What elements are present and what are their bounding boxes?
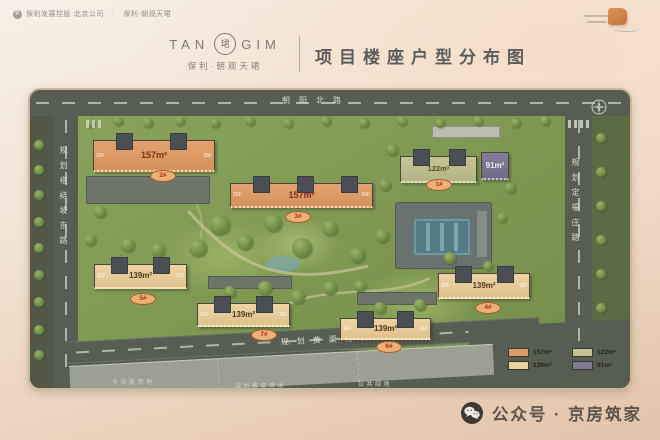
- company-separator: ｜: [110, 9, 118, 19]
- building-1-tag: 1#: [426, 179, 452, 191]
- project-name: 保利·朝观天珺: [123, 9, 171, 19]
- land-label-multifunction: 多功能用地: [112, 377, 155, 386]
- land-label-green: 公共绿地: [358, 379, 392, 388]
- company-name: 保利发展控股·北京公司: [26, 9, 104, 19]
- building-2-tag: 2#: [150, 170, 176, 182]
- page-title: 项目楼座户型分布图: [315, 43, 531, 68]
- logo-word-left: TAN: [169, 37, 209, 52]
- legend-item-139: 139m²: [508, 359, 570, 372]
- west-road-label: 规划褡裢坡东路: [58, 146, 69, 251]
- building-4-tag: 4#: [475, 302, 501, 314]
- building-7[interactable]: 11F 139m² 11F: [197, 303, 290, 327]
- building-91[interactable]: 91m²: [481, 152, 509, 180]
- building-6-tag: 6#: [376, 341, 402, 353]
- building-5-tag: 5#: [130, 293, 156, 305]
- crosswalk: [86, 120, 101, 128]
- site-plan-map[interactable]: 规划黄渠南街 多功能用地 规划教育用地 公共绿地 朝阳北路 规划褡裢坡东路 规划…: [28, 88, 632, 390]
- poly-logo-icon: P: [13, 10, 22, 19]
- east-road-label: 规划定福庄路: [570, 158, 581, 248]
- podium-deck: [86, 176, 210, 204]
- wechat-icon: [460, 401, 484, 425]
- podium-deck: [208, 276, 292, 289]
- compass-icon: [590, 98, 608, 116]
- header-divider: [299, 36, 300, 72]
- area-legend: 157m² 122m² 139m² 91m²: [508, 346, 628, 372]
- building-3[interactable]: 25F 157m² 26F: [230, 183, 373, 208]
- building-4[interactable]: 11F 139m² 11F: [438, 273, 530, 299]
- building-3-tag: 3#: [285, 211, 311, 223]
- logo-word-right: GIM: [241, 37, 281, 52]
- crosswalk: [568, 120, 589, 128]
- legend-item-122: 122m²: [572, 346, 628, 359]
- logo-seal-icon: 珺: [214, 33, 236, 55]
- building-2[interactable]: 26F 157m² 25F: [93, 140, 215, 172]
- land-label-education: 规划教育用地: [235, 381, 286, 390]
- brand-logo: TAN 珺 GIM 保利·朝观天珺: [158, 33, 292, 72]
- legend-item-91: 91m²: [572, 359, 628, 372]
- stamp-seal-icon: [608, 8, 627, 25]
- building-5[interactable]: 11F 139m² 11F: [94, 264, 187, 289]
- wechat-footer: 公众号 · 京房筑家: [460, 401, 642, 425]
- north-road-label: 朝阳北路: [282, 95, 350, 106]
- pool: [414, 219, 470, 255]
- company-bar: P 保利发展控股·北京公司 ｜ 保利·朝观天珺: [13, 9, 171, 19]
- legend-item-157: 157m²: [508, 346, 570, 359]
- wechat-account-name: 公众号 · 京房筑家: [492, 401, 642, 425]
- building-7-tag: 7#: [251, 329, 277, 341]
- low-rise-block: [432, 126, 500, 138]
- logo-subtitle: 保利·朝观天珺: [158, 60, 292, 72]
- decorative-stamp: [583, 6, 641, 48]
- building-6[interactable]: 11F 139m² 11F: [340, 318, 431, 340]
